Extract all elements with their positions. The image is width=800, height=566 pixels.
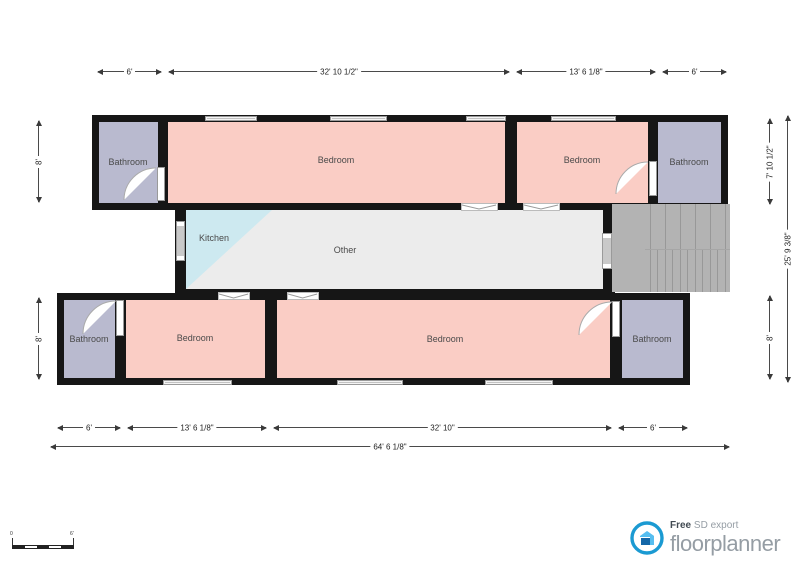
dimension-right-overall: 25' 9 3/8" (783, 115, 793, 383)
room-label-bathroom: Bathroom (632, 334, 671, 344)
dimension-right-1: 7' 10 1/2" (765, 118, 775, 205)
scale-tick-right (73, 538, 74, 545)
stair-step-line (710, 204, 711, 292)
door-swing-icon (123, 167, 157, 201)
stair-step-line (695, 204, 696, 292)
dimension-bottom-1: 6' (57, 423, 121, 433)
scale-label-start: 0 (10, 531, 13, 537)
dimension-bottom-3: 32' 10" (273, 423, 612, 433)
floorplanner-logo: Free SD export floorplanner (630, 520, 780, 555)
window (485, 380, 553, 385)
window (205, 116, 257, 121)
scale-label-end: 6' (70, 531, 74, 537)
dimension-top-3: 13' 6 1/8" (516, 67, 656, 77)
door-swing-icon (82, 300, 117, 335)
room-label-bedroom: Bedroom (177, 333, 214, 343)
door-swing-icon (615, 161, 649, 195)
door-leaf (116, 300, 124, 336)
double-door-icon (218, 292, 250, 300)
dimension-left-2: 8' (34, 297, 44, 380)
scale-tick-left (12, 538, 13, 545)
window (330, 116, 387, 121)
logo-brand-name: floorplanner (670, 533, 780, 555)
room-label-bathroom: Bathroom (108, 157, 147, 167)
stair-step-line (717, 250, 718, 292)
stair-step-line (672, 250, 673, 292)
dimension-top-4: 6' (662, 67, 727, 77)
scale-bar (12, 545, 74, 549)
dimension-right-2: 8' (765, 295, 775, 380)
dimension-top-1: 6' (97, 67, 162, 77)
room-label-bedroom: Bedroom (427, 334, 464, 344)
stair-step-line (702, 250, 703, 292)
stair-step-line (680, 204, 681, 292)
stair-step-line (725, 204, 726, 292)
door-swing-icon (578, 301, 613, 336)
door-leaf (157, 167, 165, 201)
dimension-top-2: 32' 10 1/2" (168, 67, 510, 77)
dimension-left-1: 8' (34, 120, 44, 203)
dimension-bottom-2: 13' 6 1/8" (127, 423, 267, 433)
stair-landing-line (645, 249, 730, 250)
window (337, 380, 403, 385)
stair-step-line (665, 204, 666, 292)
room-label-bedroom: Bedroom (318, 155, 355, 165)
room-label-bathroom: Bathroom (69, 334, 108, 344)
stair-step-line (687, 250, 688, 292)
window (466, 116, 506, 121)
window (551, 116, 616, 121)
stair-step-line (657, 250, 658, 292)
floorplanner-logo-icon (630, 521, 664, 555)
room-label-other: Other (334, 245, 357, 255)
double-door-icon (523, 203, 560, 211)
stair-step-line (650, 204, 651, 292)
dimension-bottom-overall: 64' 6 1/8" (50, 442, 730, 452)
window (163, 380, 232, 385)
floorplan-export-canvas: Bathroom Bedroom Bedroom Bathroom Kitche… (0, 0, 800, 566)
double-door-icon (461, 203, 498, 211)
dimension-bottom-4: 6' (618, 423, 688, 433)
door-leaf (649, 161, 657, 196)
room-label-bedroom: Bedroom (564, 155, 601, 165)
logo-export-label: SD export (694, 520, 738, 531)
room-label-kitchen: Kitchen (199, 233, 229, 243)
logo-tagline: Free SD export (670, 521, 780, 531)
sliding-door-icon (176, 221, 185, 261)
logo-free-label: Free (670, 520, 691, 531)
staircase (612, 204, 730, 292)
double-door-icon (287, 292, 319, 300)
sliding-door-icon (602, 233, 612, 269)
door-leaf (612, 301, 620, 337)
room-label-bathroom: Bathroom (669, 157, 708, 167)
